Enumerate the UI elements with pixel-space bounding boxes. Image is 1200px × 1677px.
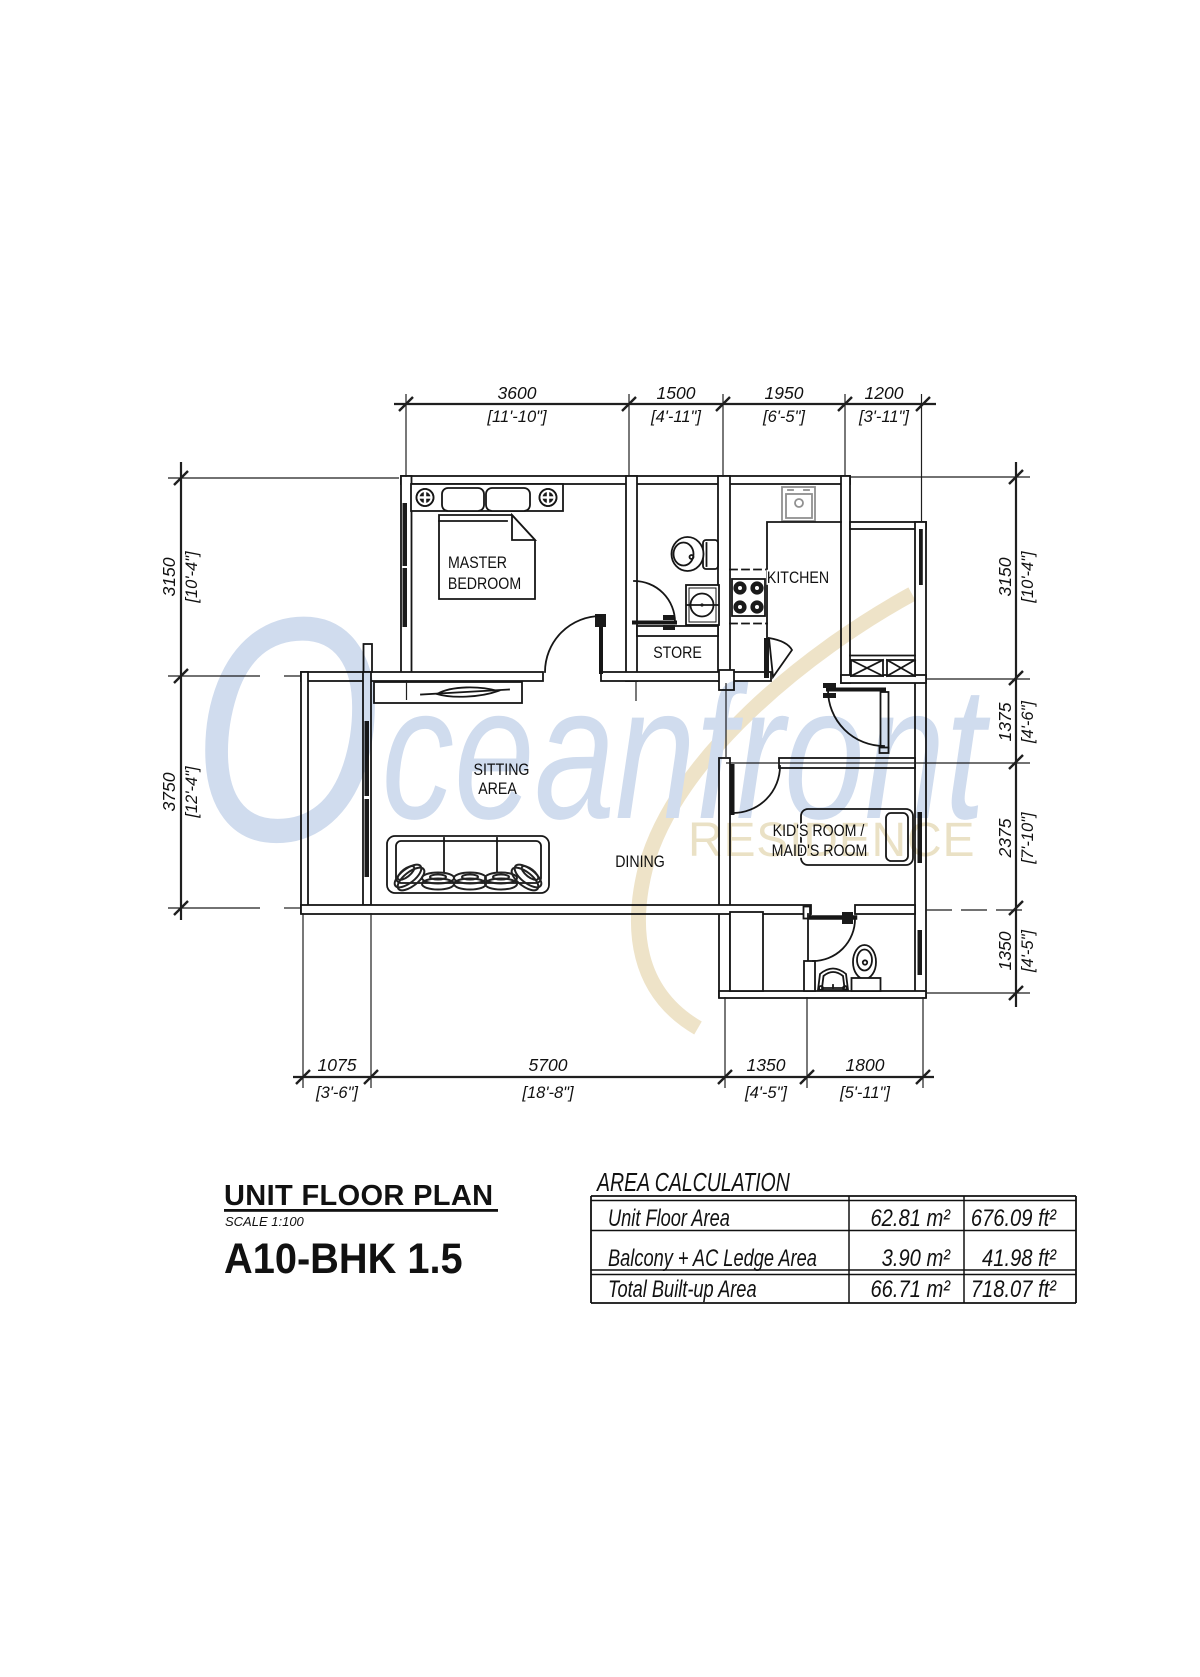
svg-text:5700: 5700 <box>529 1055 568 1075</box>
svg-text:[4'-11"]: [4'-11"] <box>650 408 701 426</box>
svg-text:1500: 1500 <box>657 383 696 403</box>
svg-text:[4'-5"]: [4'-5"] <box>744 1084 787 1102</box>
svg-text:1375: 1375 <box>995 702 1015 741</box>
svg-text:A10-BHK 1.5: A10-BHK 1.5 <box>224 1235 463 1283</box>
svg-text:1075: 1075 <box>318 1055 357 1075</box>
svg-text:3150: 3150 <box>159 557 179 596</box>
svg-text:BEDROOM: BEDROOM <box>448 575 521 593</box>
svg-text:MASTER: MASTER <box>448 554 507 572</box>
svg-text:[6'-5"]: [6'-5"] <box>762 408 805 426</box>
svg-text:[7'-10"]: [7'-10"] <box>1019 812 1037 865</box>
svg-text:1200: 1200 <box>865 383 904 403</box>
svg-text:676.09 ft²: 676.09 ft² <box>971 1204 1058 1231</box>
svg-text:1950: 1950 <box>765 383 804 403</box>
svg-text:62.81 m²: 62.81 m² <box>870 1204 951 1231</box>
svg-text:1350: 1350 <box>747 1055 786 1075</box>
svg-text:Balcony + AC Ledge Area: Balcony + AC Ledge Area <box>608 1245 817 1272</box>
svg-text:3.90 m²: 3.90 m² <box>882 1244 952 1271</box>
svg-text:[3'-11"]: [3'-11"] <box>858 408 909 426</box>
svg-text:AREA CALCULATION: AREA CALCULATION <box>595 1167 790 1196</box>
svg-text:1350: 1350 <box>995 931 1015 970</box>
svg-text:KITCHEN: KITCHEN <box>767 569 829 587</box>
svg-text:[3'-6"]: [3'-6"] <box>315 1084 358 1102</box>
svg-text:[5'-11"]: [5'-11"] <box>839 1084 890 1102</box>
svg-text:Unit Floor Area: Unit Floor Area <box>608 1205 730 1232</box>
svg-text:UNIT FLOOR PLAN: UNIT FLOOR PLAN <box>224 1180 493 1212</box>
svg-text:[4'-6"]: [4'-6"] <box>1019 701 1037 744</box>
svg-text:[18'-8"]: [18'-8"] <box>521 1084 574 1102</box>
svg-text:Total Built-up Area: Total Built-up Area <box>608 1276 757 1303</box>
svg-text:1800: 1800 <box>846 1055 885 1075</box>
svg-text:66.71 m²: 66.71 m² <box>870 1275 951 1302</box>
svg-text:3150: 3150 <box>995 557 1015 596</box>
svg-text:[11'-10"]: [11'-10"] <box>486 408 547 426</box>
svg-text:[10'-4"]: [10'-4"] <box>1019 551 1037 604</box>
svg-text:718.07 ft²: 718.07 ft² <box>971 1275 1058 1302</box>
svg-text:2375: 2375 <box>995 818 1015 858</box>
svg-text:[4'-5"]: [4'-5"] <box>1019 930 1037 973</box>
svg-text:3600: 3600 <box>498 383 537 403</box>
svg-text:SCALE 1:100: SCALE 1:100 <box>225 1214 305 1229</box>
svg-text:41.98 ft²: 41.98 ft² <box>982 1244 1057 1271</box>
svg-text:3750: 3750 <box>159 772 179 811</box>
